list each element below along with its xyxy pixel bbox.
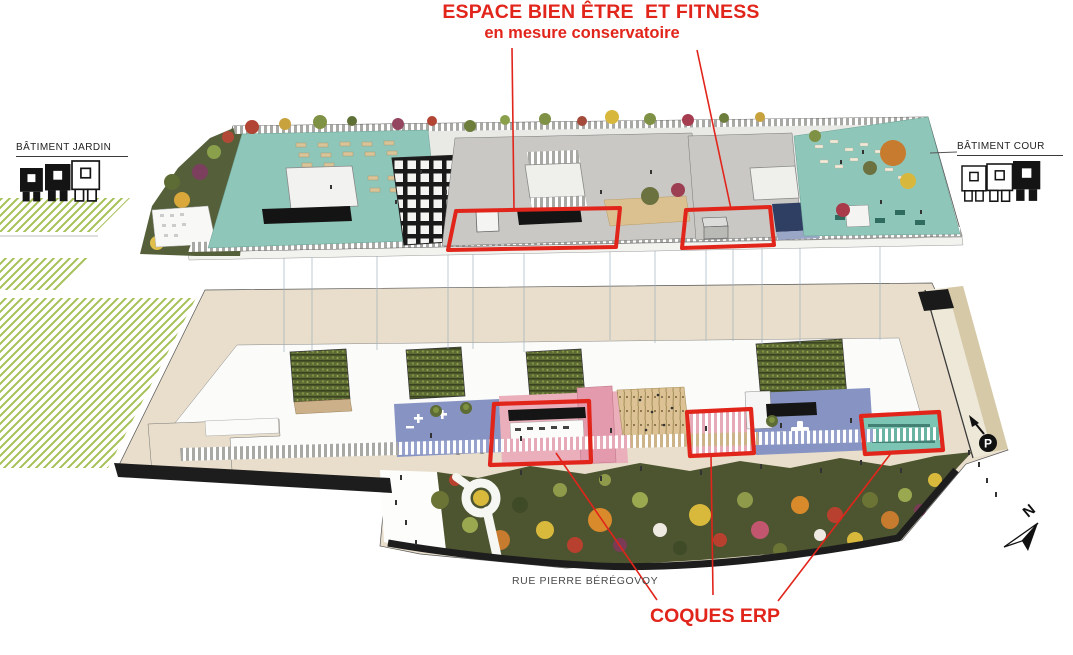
street-label: RUE PIERRE BÉRÉGOVOY bbox=[512, 575, 658, 587]
annotation-title: ESPACE BIEN ÊTRE ET FITNESS bbox=[430, 1, 772, 24]
building-icons-left bbox=[20, 161, 99, 201]
north-arrow-icon: N bbox=[1004, 501, 1039, 551]
pink-zone bbox=[499, 386, 628, 465]
annotation-subtitle: en mesure conservatoire bbox=[412, 24, 752, 43]
upper-roof-plan bbox=[140, 110, 963, 260]
building-icons-right bbox=[962, 161, 1040, 201]
blue-plaza-2 bbox=[745, 388, 874, 455]
coques-label: COQUES ERP bbox=[645, 605, 785, 628]
courtyard-middle bbox=[525, 163, 585, 198]
courtyard-right bbox=[750, 166, 799, 200]
parking-letter: P bbox=[984, 437, 992, 451]
building-label-left: BÂTIMENT JARDIN bbox=[16, 142, 128, 157]
building-label-right: BÂTIMENT COUR bbox=[957, 141, 1063, 156]
gray-roof-middle bbox=[442, 133, 702, 246]
plan-drawing: P bbox=[0, 0, 1073, 655]
courtyard-left bbox=[286, 166, 358, 209]
teal-terrace-right bbox=[794, 117, 960, 236]
lower-ground-plan: P bbox=[114, 283, 1008, 568]
site-plan: P bbox=[0, 0, 1073, 655]
north-letter: N bbox=[1020, 501, 1039, 521]
